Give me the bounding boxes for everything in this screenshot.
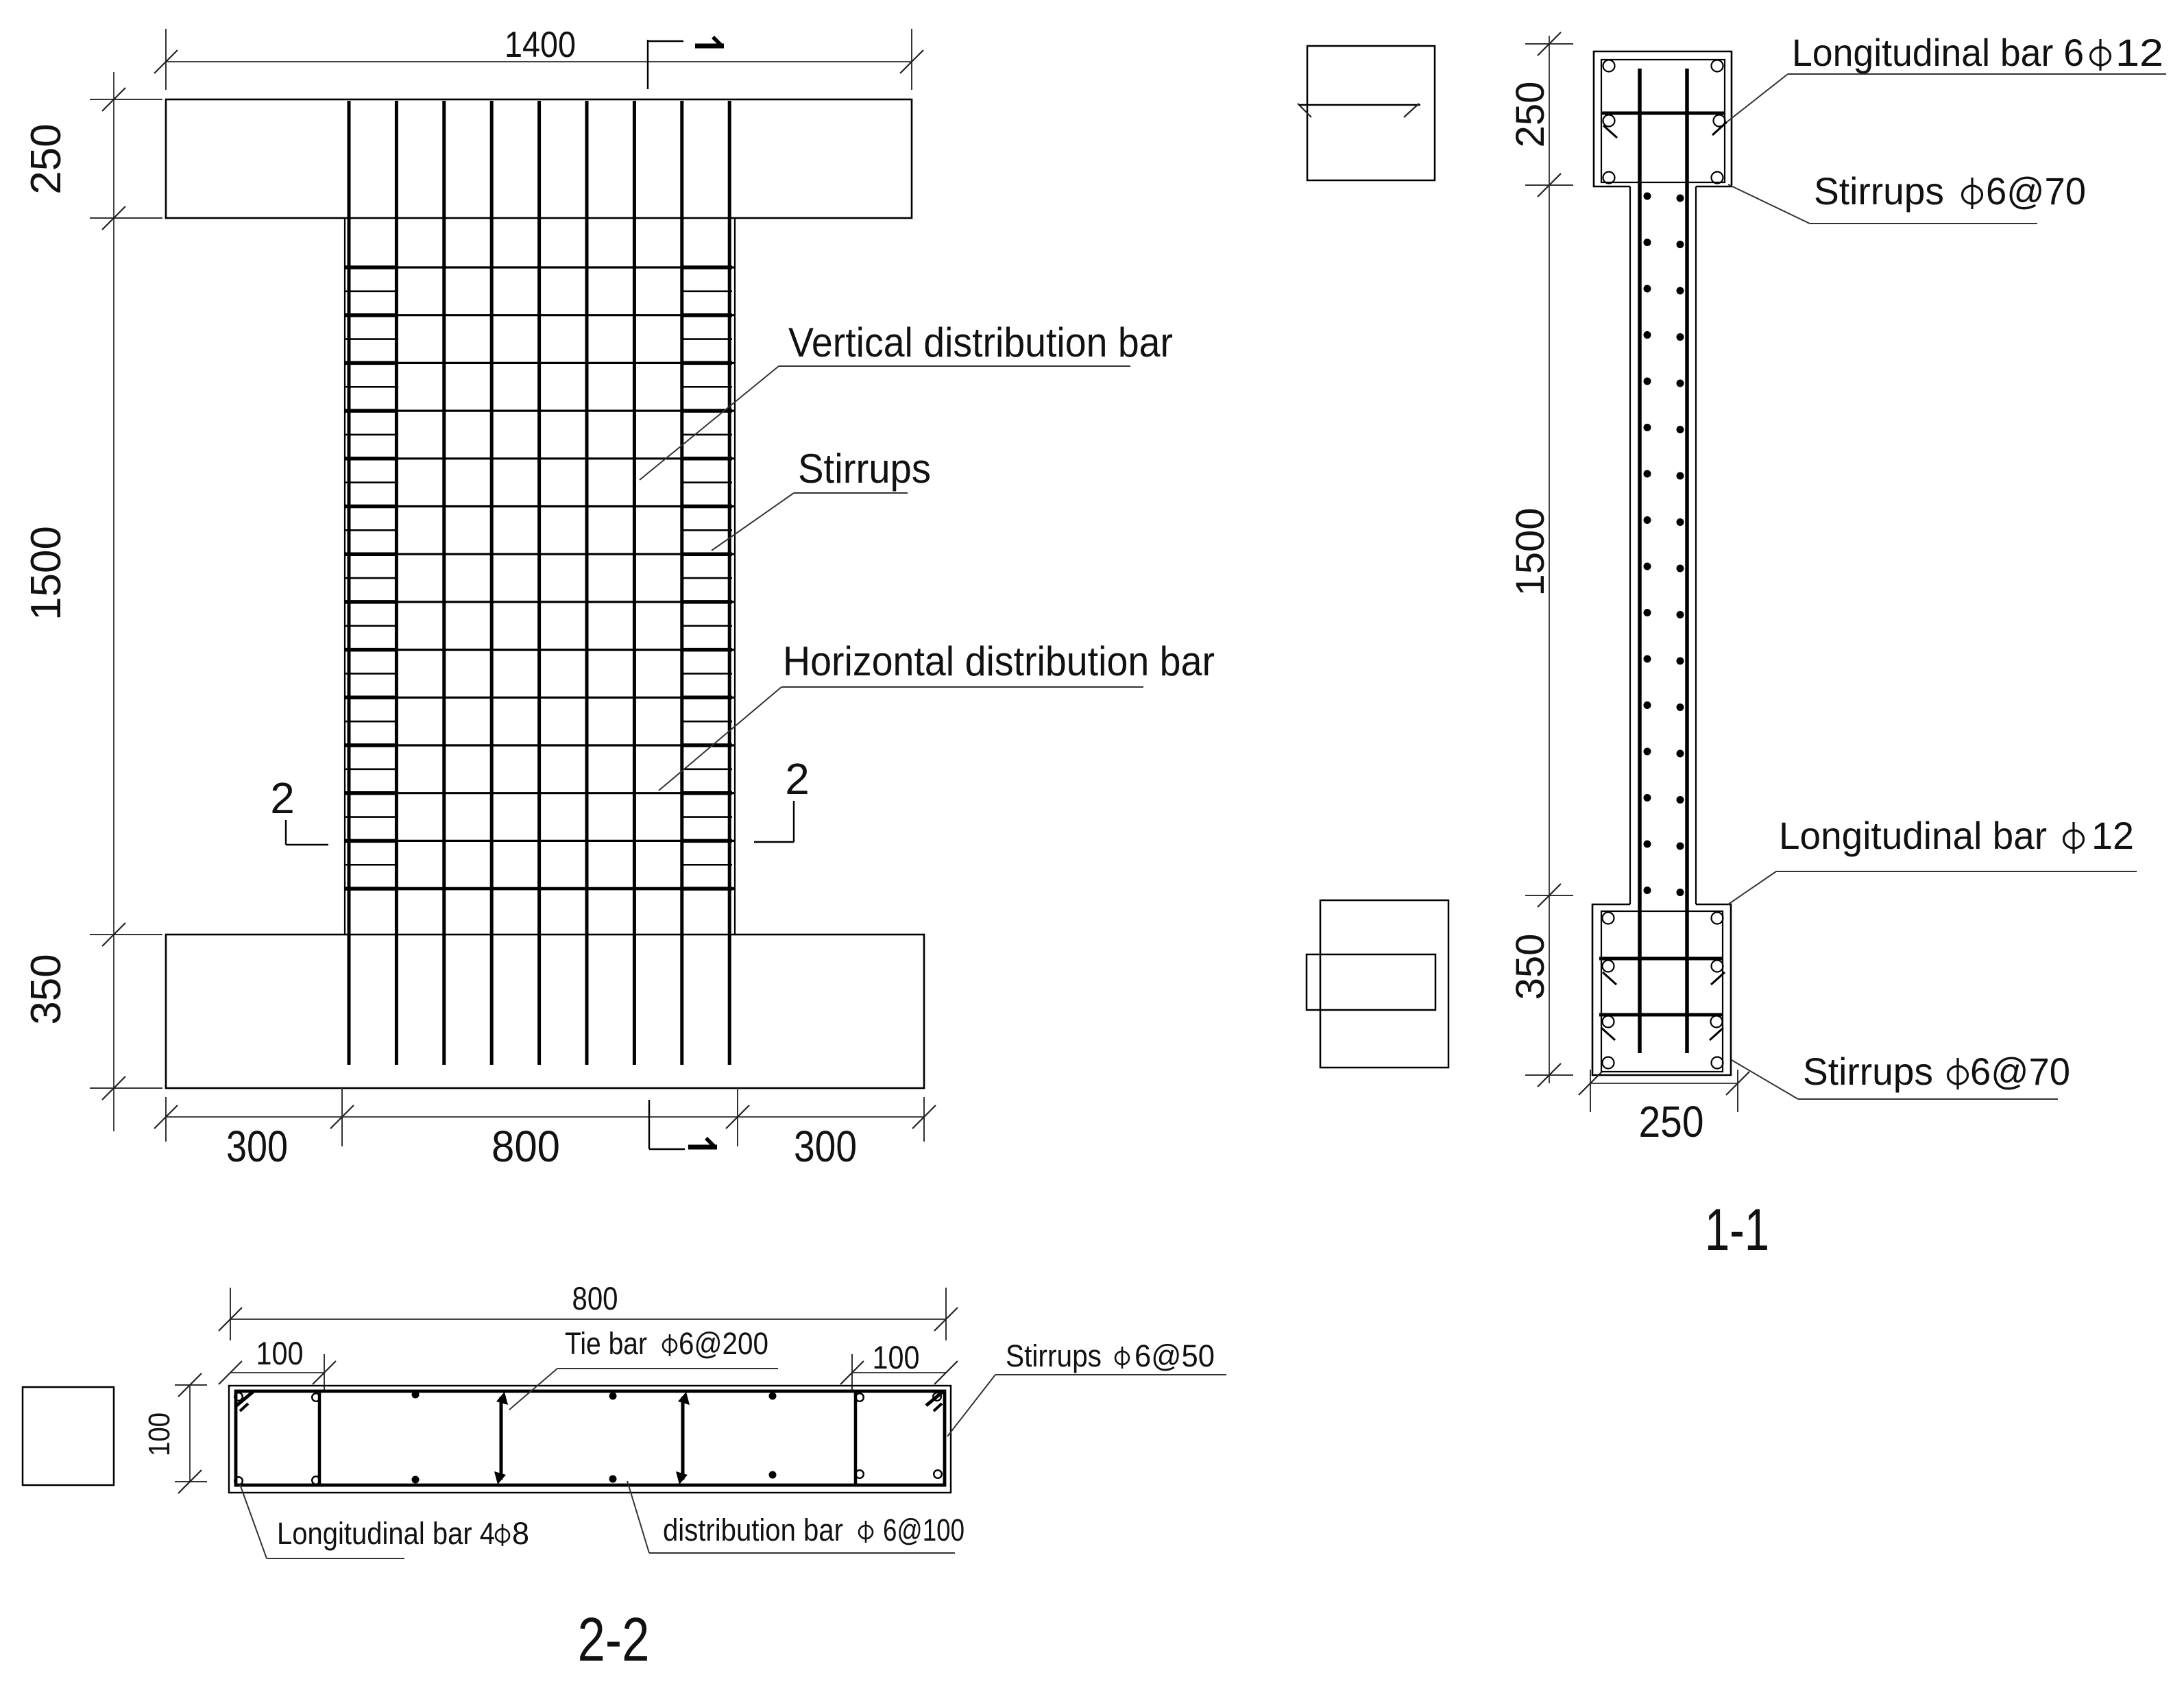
svg-text:6@50: 6@50 <box>1135 1338 1215 1373</box>
svg-text:8: 8 <box>512 1516 529 1551</box>
svg-text:2-2: 2-2 <box>578 1606 650 1674</box>
svg-text:1-1: 1-1 <box>1705 1197 1769 1263</box>
svg-text:12: 12 <box>2091 814 2134 857</box>
svg-text:100: 100 <box>143 1412 176 1456</box>
svg-text:300: 300 <box>226 1122 288 1171</box>
svg-text:2: 2 <box>270 773 295 823</box>
svg-text:250: 250 <box>1639 1097 1704 1146</box>
svg-text:6@200: 6@200 <box>679 1326 768 1361</box>
svg-text:6@70: 6@70 <box>1970 1050 2070 1093</box>
svg-text:6@70: 6@70 <box>1986 169 2086 213</box>
svg-text:100: 100 <box>873 1339 920 1375</box>
svg-text:12: 12 <box>2115 31 2163 74</box>
svg-text:Stirrups: Stirrups <box>1814 169 1944 213</box>
svg-text:250: 250 <box>23 123 70 194</box>
svg-text:350: 350 <box>23 954 70 1024</box>
svg-text:350: 350 <box>1508 934 1553 1000</box>
svg-text:1400: 1400 <box>505 25 576 65</box>
svg-text:distribution bar: distribution bar <box>663 1513 843 1547</box>
svg-text:2: 2 <box>785 754 810 804</box>
svg-text:Stirrups: Stirrups <box>1006 1338 1102 1373</box>
svg-text:Longitudinal bar: Longitudinal bar <box>1779 814 2047 857</box>
svg-text:Longitudinal bar 6: Longitudinal bar 6 <box>1792 31 2084 74</box>
svg-text:1500: 1500 <box>1508 507 1553 596</box>
svg-text:250: 250 <box>1508 82 1553 148</box>
svg-text:6@100: 6@100 <box>883 1513 964 1547</box>
svg-text:Longitudinal bar 4: Longitudinal bar 4 <box>277 1516 495 1551</box>
svg-text:800: 800 <box>572 1280 618 1316</box>
svg-text:1500: 1500 <box>23 526 70 621</box>
svg-text:300: 300 <box>794 1122 857 1171</box>
svg-text:800: 800 <box>492 1122 560 1171</box>
svg-text:Stirrups: Stirrups <box>1803 1050 1933 1093</box>
svg-text:Vertical distribution bar: Vertical distribution bar <box>788 320 1173 365</box>
svg-text:Stirrups: Stirrups <box>798 446 931 492</box>
svg-text:Horizontal distribution bar: Horizontal distribution bar <box>783 638 1215 684</box>
svg-text:100: 100 <box>256 1335 304 1371</box>
svg-text:Tie bar: Tie bar <box>565 1326 647 1361</box>
